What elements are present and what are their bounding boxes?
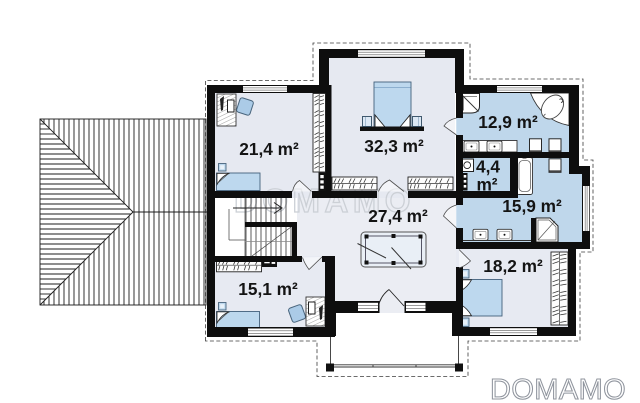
svg-text:15,9 m²: 15,9 m² [502, 196, 562, 216]
svg-text:21,4 m²: 21,4 m² [239, 139, 299, 159]
svg-text:m²: m² [476, 175, 497, 195]
svg-text:12,9 m²: 12,9 m² [478, 112, 538, 132]
svg-text:27,4 m²: 27,4 m² [368, 206, 428, 226]
svg-text:4,4: 4,4 [476, 157, 500, 177]
svg-text:15,1 m²: 15,1 m² [238, 279, 298, 299]
svg-text:32,3 m²: 32,3 m² [364, 136, 424, 156]
svg-text:DOMAMO: DOMAMO [490, 374, 626, 403]
svg-text:18,2 m²: 18,2 m² [483, 256, 543, 276]
